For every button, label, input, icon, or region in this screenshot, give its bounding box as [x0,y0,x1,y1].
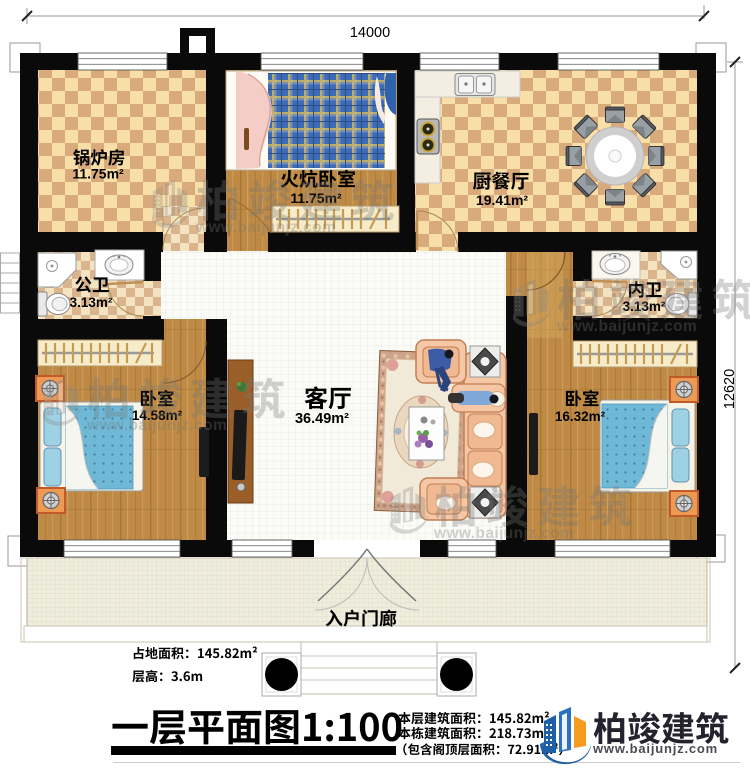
svg-text:11.75m²: 11.75m² [72,166,124,182]
svg-text:14000: 14000 [350,25,390,41]
svg-text:19.41m²: 19.41m² [476,192,528,208]
svg-text:12620: 12620 [722,369,738,409]
svg-text:16.32m²: 16.32m² [555,409,606,424]
svg-text:36.49m²: 36.49m² [295,411,349,427]
svg-text:www.baijunjz.com: www.baijunjz.com [592,741,718,756]
svg-text:3.13m²: 3.13m² [70,295,113,310]
